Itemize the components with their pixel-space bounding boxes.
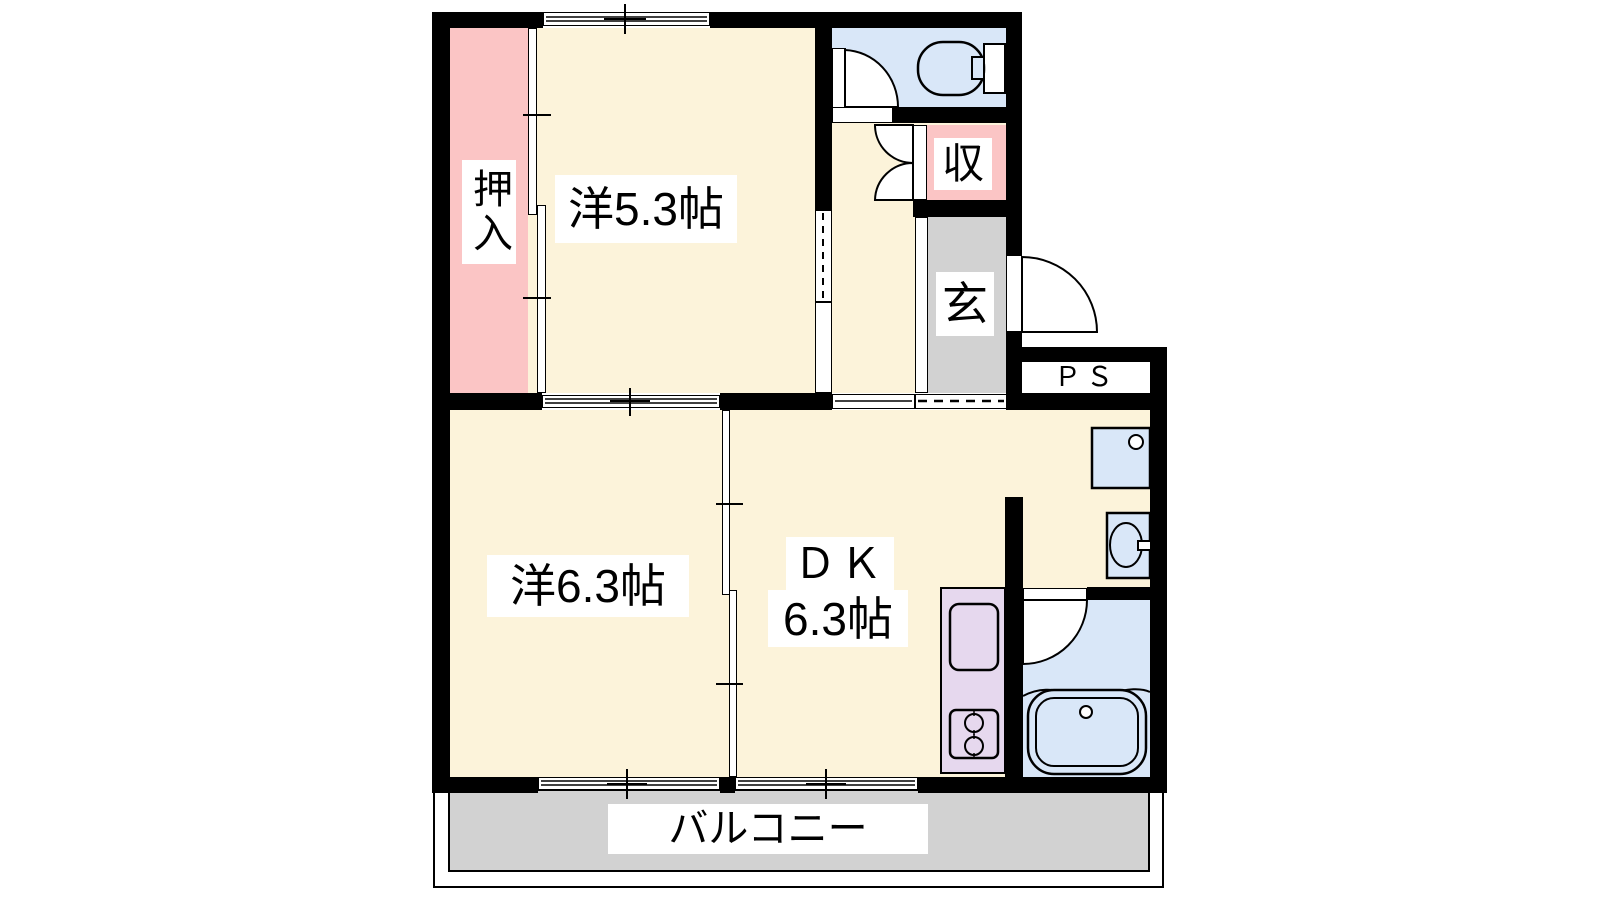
window-mid: [542, 395, 720, 408]
bathroom-area: [1023, 600, 1150, 777]
label-balcony: バルコニー: [608, 804, 928, 854]
wall-bottom-c: [918, 777, 1164, 793]
wall-room-a-right: [815, 12, 832, 210]
room-a-slider-leaf: [815, 302, 832, 393]
wall-mid-b: [720, 393, 832, 410]
wall-toilet-bottom: [893, 107, 1006, 123]
window-bottom-b: [735, 777, 918, 790]
room-partition-panel-1: [722, 410, 730, 595]
genkan-dk-step-line: [915, 394, 1007, 409]
label-pipe-space: ＰＳ: [1030, 362, 1142, 393]
wall-right-upper-a: [1006, 12, 1022, 255]
wall-storage-bottom: [913, 200, 1006, 217]
wall-bottom-b: [720, 777, 735, 793]
wall-top-right: [710, 12, 1022, 28]
label-oshiire: 押入: [462, 160, 516, 264]
wall-bath-partition: [1005, 497, 1023, 777]
entrance-door-swing-arc: [1022, 257, 1097, 332]
wall-ps-bottom: [1007, 393, 1167, 410]
storage-door-frame: [913, 125, 927, 200]
bathroom-door-leaf: [1023, 588, 1087, 601]
window-bottom-a: [538, 777, 720, 790]
kitchen-counter: [940, 587, 1006, 774]
wall-mid-a: [432, 393, 542, 410]
entrance-step-edge: [915, 217, 928, 393]
wall-right-lower: [1150, 347, 1167, 793]
toilet-room-area: [831, 28, 1006, 107]
wall-ps-top: [1006, 347, 1167, 362]
hallway-dk-opening: [832, 394, 915, 409]
wall-bath-top: [1087, 587, 1150, 600]
label-dk-name: ＤＫ: [786, 537, 894, 590]
closet-fusuma-panel-2: [537, 205, 546, 393]
label-storage: 収: [934, 138, 992, 190]
closet-fusuma-panel-1: [528, 28, 537, 215]
label-dk-size: 6.3帖: [768, 590, 908, 647]
label-room-b: 洋6.3帖: [487, 555, 689, 617]
room-partition-panel-2: [729, 590, 737, 777]
window-top: [543, 12, 710, 26]
wall-right-upper-b: [1006, 332, 1022, 410]
floor-plan-canvas: 押入 洋5.3帖 収 玄 ＰＳ 洋6.3帖 ＤＫ 6.3帖 バルコニー: [0, 0, 1600, 900]
room-a-slider-track: [815, 210, 832, 302]
toilet-door-leaf: [832, 48, 846, 108]
toilet-door-threshold: [832, 107, 893, 123]
label-room-a: 洋5.3帖: [555, 175, 737, 243]
wall-bottom-a: [432, 777, 538, 793]
label-entrance: 玄: [936, 272, 994, 336]
entrance-door-leaf: [1006, 255, 1022, 332]
